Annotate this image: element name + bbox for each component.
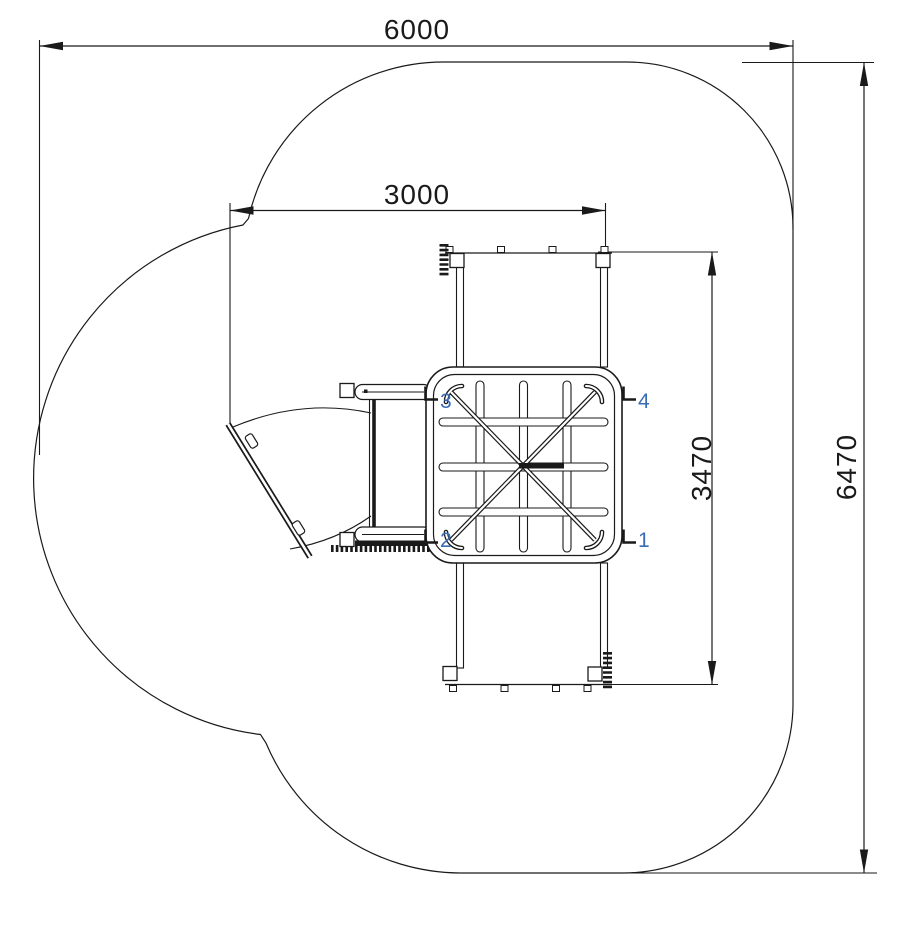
corner-label-1: 1 xyxy=(638,529,650,552)
post-foot xyxy=(596,254,610,268)
crossbar-tab xyxy=(553,686,560,692)
arrowhead-left xyxy=(40,42,64,50)
post-foot xyxy=(340,533,354,547)
post-foot xyxy=(588,667,602,681)
platform xyxy=(426,367,622,563)
post-foot xyxy=(340,384,354,398)
climber-cleat xyxy=(244,433,258,449)
climbing-wall-assembly xyxy=(228,384,434,558)
dimension-6470: 6470 xyxy=(623,63,877,874)
technical-drawing-canvas: 6000 3000 3470 6470 xyxy=(0,0,921,929)
crossbar-tab xyxy=(450,686,457,692)
climber-board-core xyxy=(228,424,310,557)
arrowhead-right xyxy=(582,206,606,214)
post-mark xyxy=(624,530,637,543)
center-handle xyxy=(519,463,564,469)
corner-label-2: 2 xyxy=(440,529,452,552)
dimension-text-inner-height: 3470 xyxy=(686,435,717,501)
crossbar-tab xyxy=(498,247,505,253)
crossbar-tab xyxy=(549,247,556,253)
rail-right xyxy=(601,267,608,367)
dimension-text-inner-width: 3000 xyxy=(384,179,450,210)
arrowhead-up xyxy=(860,63,868,87)
post-foot xyxy=(450,254,464,268)
post-foot xyxy=(443,667,457,681)
crossbar-tab xyxy=(501,686,508,692)
arrowhead-down xyxy=(708,661,716,685)
deck-slat-horizontal xyxy=(439,418,608,426)
plan-drawing: 6000 3000 3470 6470 xyxy=(0,0,921,929)
corner-label-3: 3 xyxy=(440,390,452,413)
arrowhead-right xyxy=(770,42,794,50)
swing-arc-top xyxy=(233,408,371,427)
post-mark xyxy=(624,387,637,400)
arrowhead-down xyxy=(860,850,868,874)
crossbar-tab xyxy=(584,686,591,692)
rail-left xyxy=(457,267,464,367)
corner-label-4: 4 xyxy=(638,390,650,413)
ladder-south xyxy=(443,563,612,692)
arrowhead-up xyxy=(708,252,716,276)
crossbar-tab xyxy=(601,247,608,253)
rail-left xyxy=(457,563,464,668)
dimension-text-total-height: 6470 xyxy=(831,434,862,500)
deck-slat-horizontal xyxy=(439,508,608,516)
arrowhead-left xyxy=(230,206,254,214)
bolt xyxy=(364,390,368,394)
ladder-north xyxy=(444,244,612,367)
dimension-text-total-width: 6000 xyxy=(384,14,450,45)
